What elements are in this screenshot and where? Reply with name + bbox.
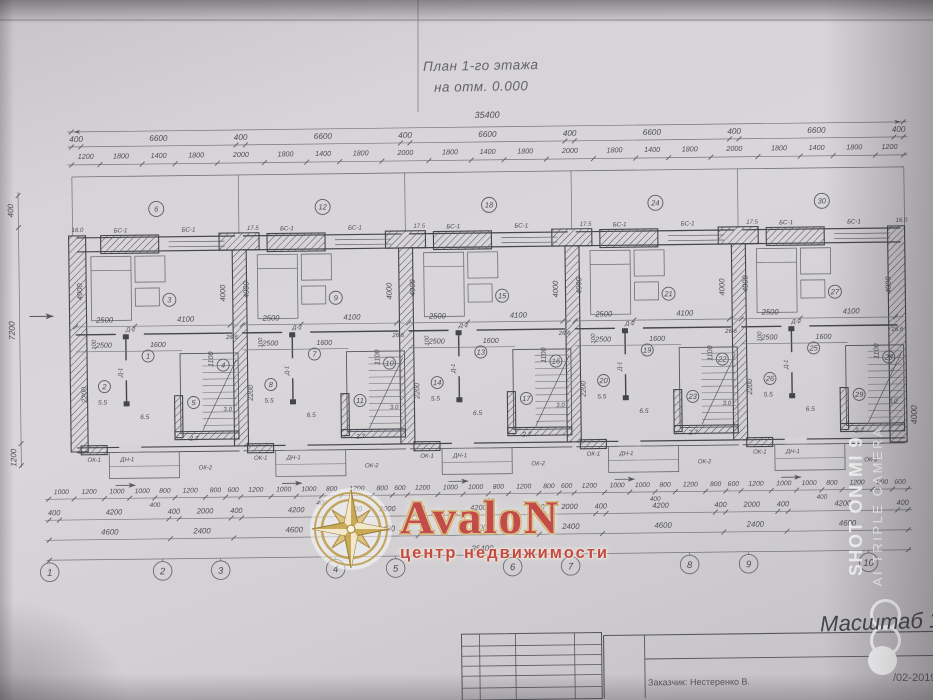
svg-text:5: 5 xyxy=(191,398,196,407)
svg-text:14: 14 xyxy=(433,378,441,387)
svg-text:5.5: 5.5 xyxy=(764,391,774,398)
svg-text:1000: 1000 xyxy=(610,482,625,489)
svg-text:6.5: 6.5 xyxy=(140,414,150,421)
svg-text:100: 100 xyxy=(757,331,763,342)
svg-text:2200: 2200 xyxy=(246,385,255,402)
svg-text:ОК-1: ОК-1 xyxy=(254,456,268,462)
svg-text:26.6: 26.6 xyxy=(724,329,737,335)
svg-text:600: 600 xyxy=(728,481,740,488)
svg-text:12: 12 xyxy=(318,202,327,211)
svg-text:4900: 4900 xyxy=(75,283,84,301)
svg-text:6.5: 6.5 xyxy=(806,406,816,413)
svg-text:8: 8 xyxy=(687,560,693,571)
svg-text:6.5: 6.5 xyxy=(307,412,317,419)
svg-text:400: 400 xyxy=(230,506,243,515)
svg-text:1400: 1400 xyxy=(315,149,331,158)
photo-shadow xyxy=(823,0,933,700)
photo-of-floor-plan: { "title": {"line1": "План 1-го этажа", … xyxy=(0,0,933,700)
unit-1: 6БС-1БС-132500410049004000Д-2Д-125001600… xyxy=(72,200,240,488)
svg-text:2000: 2000 xyxy=(196,506,214,515)
svg-text:1600: 1600 xyxy=(649,334,665,343)
svg-text:5.5: 5.5 xyxy=(98,400,108,407)
svg-text:4600: 4600 xyxy=(654,521,672,530)
svg-text:4000: 4000 xyxy=(551,280,560,298)
svg-text:26.6: 26.6 xyxy=(558,331,571,337)
svg-text:1000: 1000 xyxy=(635,482,650,489)
svg-text:1800: 1800 xyxy=(353,148,369,157)
title-line2: на отм. 0.000 xyxy=(356,75,606,100)
svg-text:4900: 4900 xyxy=(574,277,583,295)
svg-text:26: 26 xyxy=(765,374,775,383)
svg-text:4200: 4200 xyxy=(288,505,305,514)
svg-text:ОК-2: ОК-2 xyxy=(531,461,545,467)
svg-text:Д-2: Д-2 xyxy=(458,323,469,329)
svg-text:4900: 4900 xyxy=(242,281,251,299)
photo-shadow xyxy=(0,560,180,700)
svg-text:17.5: 17.5 xyxy=(580,222,592,228)
svg-text:6600: 6600 xyxy=(314,132,333,141)
svg-text:400: 400 xyxy=(69,135,83,144)
unit-2: 12БС-1БС-192500410049004000Д-2Д-12500160… xyxy=(238,198,406,486)
svg-text:800: 800 xyxy=(710,481,722,488)
svg-text:7: 7 xyxy=(312,350,317,359)
svg-text:800: 800 xyxy=(659,482,671,489)
svg-text:400: 400 xyxy=(727,127,741,136)
svg-text:1000: 1000 xyxy=(276,486,291,493)
svg-text:4100: 4100 xyxy=(676,308,694,317)
svg-text:ОК-1: ОК-1 xyxy=(420,454,434,460)
svg-text:Д-1: Д-1 xyxy=(451,364,457,374)
brand-text: AvaloN xyxy=(400,495,609,542)
svg-text:2000: 2000 xyxy=(725,144,742,153)
svg-text:1000: 1000 xyxy=(109,488,124,495)
svg-text:ОК-2: ОК-2 xyxy=(365,463,379,469)
svg-text:6.5: 6.5 xyxy=(473,410,483,417)
svg-text:4: 4 xyxy=(221,361,225,370)
svg-text:1200: 1200 xyxy=(248,487,263,494)
svg-text:6600: 6600 xyxy=(149,134,168,143)
svg-text:20: 20 xyxy=(598,376,608,385)
svg-text:13: 13 xyxy=(477,348,486,357)
svg-text:5.5: 5.5 xyxy=(264,398,274,405)
svg-text:2000: 2000 xyxy=(396,148,413,157)
plan-body: 16.016.017.517.517.517.5 xyxy=(68,167,911,452)
svg-text:3: 3 xyxy=(218,566,224,577)
svg-text:25: 25 xyxy=(808,343,818,352)
drawing-title: План 1-го этажа на отм. 0.000 xyxy=(356,54,607,100)
svg-text:4100: 4100 xyxy=(510,310,528,319)
svg-text:26.6: 26.6 xyxy=(391,333,404,339)
svg-text:2500: 2500 xyxy=(428,311,447,320)
svg-text:4200: 4200 xyxy=(652,501,669,510)
svg-text:1800: 1800 xyxy=(442,147,458,156)
svg-text:800: 800 xyxy=(210,487,222,494)
svg-text:1400: 1400 xyxy=(644,145,660,154)
svg-text:1000: 1000 xyxy=(776,480,791,487)
svg-text:2500: 2500 xyxy=(95,315,114,324)
svg-text:Д-2: Д-2 xyxy=(790,319,801,325)
svg-text:17.5: 17.5 xyxy=(413,224,425,230)
unit-3: 18БС-1БС-1152500410049004000Д-2Д-1250016… xyxy=(405,196,573,484)
svg-text:1000: 1000 xyxy=(802,480,817,487)
svg-text:1200: 1200 xyxy=(82,489,97,496)
compass-rose-icon xyxy=(308,486,394,572)
svg-text:400: 400 xyxy=(150,502,161,509)
svg-text:4200: 4200 xyxy=(106,507,123,516)
svg-text:4000: 4000 xyxy=(218,284,227,302)
svg-text:2000: 2000 xyxy=(232,150,249,159)
svg-text:10: 10 xyxy=(385,359,394,368)
svg-text:Д-2: Д-2 xyxy=(291,325,302,331)
svg-text:24: 24 xyxy=(650,198,659,207)
svg-text:БС-1: БС-1 xyxy=(114,227,128,234)
svg-text:ДН-1: ДН-1 xyxy=(286,455,301,461)
svg-text:100: 100 xyxy=(92,339,98,350)
svg-text:8: 8 xyxy=(269,380,274,389)
svg-text:БС-1: БС-1 xyxy=(280,225,294,232)
svg-text:400: 400 xyxy=(563,129,577,138)
svg-text:ОК-2: ОК-2 xyxy=(698,459,712,465)
svg-text:3: 3 xyxy=(167,295,172,304)
svg-text:400: 400 xyxy=(777,499,790,508)
svg-text:4100: 4100 xyxy=(177,314,195,323)
svg-text:Д-2: Д-2 xyxy=(624,321,635,327)
svg-text:ДН-1: ДН-1 xyxy=(119,457,134,463)
svg-text:ОК-1: ОК-1 xyxy=(88,458,102,464)
svg-text:100: 100 xyxy=(591,333,597,344)
svg-text:1200: 1200 xyxy=(748,481,763,488)
svg-text:800: 800 xyxy=(159,488,171,495)
svg-text:БС-1: БС-1 xyxy=(514,222,528,229)
svg-text:1200: 1200 xyxy=(683,481,698,488)
svg-text:4600: 4600 xyxy=(101,527,119,536)
svg-text:15: 15 xyxy=(498,291,507,300)
svg-text:1000: 1000 xyxy=(54,489,69,496)
svg-text:1800: 1800 xyxy=(606,145,622,154)
svg-text:ДН-1: ДН-1 xyxy=(452,453,467,459)
svg-text:19: 19 xyxy=(643,345,652,354)
svg-text:1800: 1800 xyxy=(771,143,787,152)
svg-text:Д-1: Д-1 xyxy=(617,362,623,372)
svg-text:БС-1: БС-1 xyxy=(681,220,695,227)
svg-text:4000: 4000 xyxy=(385,282,394,300)
units: 6БС-1БС-132500410049004000Д-2Д-125001600… xyxy=(72,192,906,488)
avalon-watermark: AvaloN центр недвижимости xyxy=(308,486,609,572)
svg-text:ДН-1: ДН-1 xyxy=(785,449,800,455)
svg-text:1000: 1000 xyxy=(135,488,150,495)
svg-text:600: 600 xyxy=(227,487,239,494)
svg-text:БС-1: БС-1 xyxy=(446,223,460,230)
svg-text:6: 6 xyxy=(154,205,159,214)
svg-text:1800: 1800 xyxy=(517,146,533,155)
svg-text:4100: 4100 xyxy=(343,312,361,321)
svg-text:4900: 4900 xyxy=(408,279,417,297)
photo-frame: 3540040066004006600400660040066004006600… xyxy=(0,0,933,700)
svg-text:400: 400 xyxy=(48,508,61,517)
svg-text:1200: 1200 xyxy=(78,152,94,161)
svg-text:1400: 1400 xyxy=(151,151,167,160)
svg-text:4600: 4600 xyxy=(286,525,304,534)
svg-text:17: 17 xyxy=(522,394,531,403)
photo-shadow xyxy=(0,0,933,24)
svg-text:18: 18 xyxy=(485,200,494,209)
svg-text:БС-1: БС-1 xyxy=(613,221,627,228)
svg-text:ОК-1: ОК-1 xyxy=(753,450,767,456)
svg-text:1800: 1800 xyxy=(113,151,129,160)
svg-text:17.5: 17.5 xyxy=(746,220,758,226)
svg-text:1: 1 xyxy=(146,352,150,361)
svg-text:4900: 4900 xyxy=(741,274,750,292)
svg-text:2200: 2200 xyxy=(79,387,88,404)
svg-text:6.5: 6.5 xyxy=(639,408,649,415)
svg-text:22: 22 xyxy=(717,355,727,364)
svg-text:16: 16 xyxy=(552,357,561,366)
svg-text:400: 400 xyxy=(234,133,248,142)
svg-text:400: 400 xyxy=(398,131,412,140)
svg-text:1800: 1800 xyxy=(277,149,293,158)
svg-text:2200: 2200 xyxy=(579,381,588,398)
svg-text:Д-1: Д-1 xyxy=(784,360,790,370)
svg-text:ОК-1: ОК-1 xyxy=(587,452,601,458)
svg-text:Д-1: Д-1 xyxy=(285,366,291,376)
svg-text:400: 400 xyxy=(168,507,181,516)
svg-text:35400: 35400 xyxy=(475,110,500,120)
svg-text:100: 100 xyxy=(425,335,431,346)
svg-text:2400: 2400 xyxy=(746,520,765,529)
svg-text:9: 9 xyxy=(334,293,339,302)
svg-text:2500: 2500 xyxy=(761,307,780,316)
svg-text:Д-2: Д-2 xyxy=(125,327,136,333)
svg-text:400: 400 xyxy=(714,500,727,509)
svg-text:11: 11 xyxy=(356,396,364,405)
svg-text:26.6: 26.6 xyxy=(225,335,238,341)
svg-text:ДН-1: ДН-1 xyxy=(618,451,633,457)
svg-text:100: 100 xyxy=(258,337,264,348)
svg-text:4000: 4000 xyxy=(717,278,726,296)
svg-text:2000: 2000 xyxy=(742,500,760,509)
svg-text:2500: 2500 xyxy=(261,313,280,322)
svg-text:2500: 2500 xyxy=(594,309,613,318)
brand-subtitle: центр недвижимости xyxy=(400,544,609,563)
svg-text:2: 2 xyxy=(101,382,107,391)
svg-text:6600: 6600 xyxy=(643,128,662,137)
svg-text:2200: 2200 xyxy=(412,383,421,400)
svg-text:БС-1: БС-1 xyxy=(779,219,793,226)
svg-text:1400: 1400 xyxy=(480,147,496,156)
unit-4: 24БС-1БС-1212500410049004000Д-2Д-1250016… xyxy=(571,194,739,482)
svg-text:1800: 1800 xyxy=(188,150,204,159)
svg-text:5.5: 5.5 xyxy=(431,395,441,402)
svg-text:16.0: 16.0 xyxy=(72,228,84,234)
svg-text:21: 21 xyxy=(663,289,672,298)
svg-text:БС-1: БС-1 xyxy=(182,226,196,233)
svg-text:1600: 1600 xyxy=(483,336,499,345)
svg-text:17.5: 17.5 xyxy=(247,226,259,232)
svg-text:9: 9 xyxy=(746,559,752,570)
svg-text:2400: 2400 xyxy=(192,526,211,535)
svg-text:6600: 6600 xyxy=(478,130,497,139)
svg-text:1800: 1800 xyxy=(682,144,698,153)
top-dimensions: 3540040066004006600400660040066004006600… xyxy=(67,105,908,168)
svg-text:Д-1: Д-1 xyxy=(118,368,124,378)
svg-text:БС-1: БС-1 xyxy=(348,224,362,231)
svg-text:2200: 2200 xyxy=(745,379,754,396)
svg-text:5.5: 5.5 xyxy=(597,393,607,400)
svg-text:1600: 1600 xyxy=(316,338,332,347)
svg-text:23: 23 xyxy=(688,392,698,401)
svg-text:1200: 1200 xyxy=(183,487,198,494)
svg-text:2000: 2000 xyxy=(561,146,578,155)
svg-text:ОК-2: ОК-2 xyxy=(199,465,213,471)
svg-text:1600: 1600 xyxy=(150,340,166,349)
